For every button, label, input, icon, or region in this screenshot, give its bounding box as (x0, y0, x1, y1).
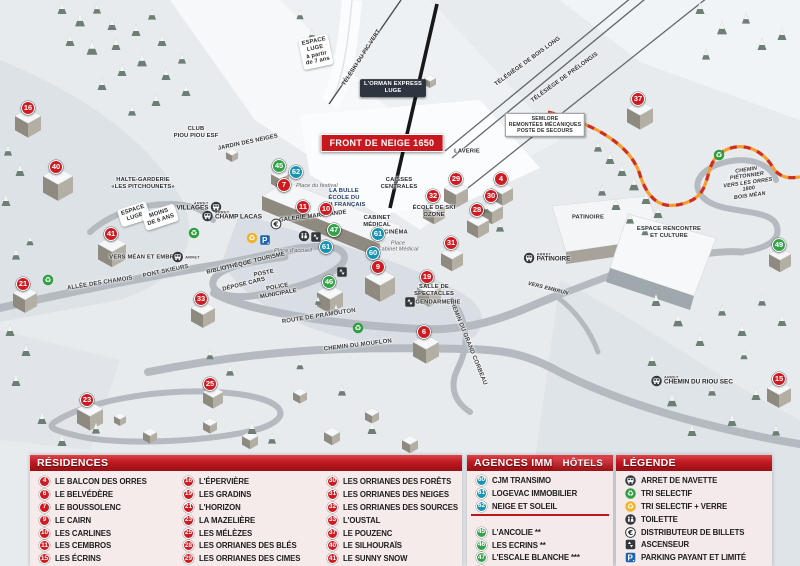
legend-item-label: LE SUNNY SNOW (343, 554, 407, 563)
map-marker-46: 46 (322, 275, 336, 289)
map-label-jardin-des-neiges: JARDIN DES NEIGES (217, 133, 278, 152)
legend-item-euro: €DISTRIBUTEUR DE BILLETS (616, 526, 772, 539)
legend-item-label: TOILETTE (641, 515, 678, 524)
legend-item-label: LE SILHOURAÏS (343, 541, 402, 550)
legend-marker-47: 47 (476, 552, 487, 563)
map-marker-10: 10 (319, 202, 333, 216)
legend-marker-45: 45 (476, 527, 487, 538)
legend-item-label: LE POUZENC (343, 529, 392, 538)
map-label-laverie: LAVERIE (454, 149, 480, 156)
map-label-all-e-des-chamois: ALLÉE DES CHAMOIS (67, 275, 134, 292)
legend-item-label: L'ESCALE BLANCHE *** (492, 553, 580, 562)
legend-item-label: LOGEVAC IMMOBILIER (492, 489, 577, 498)
legend-marker-7: 7 (39, 502, 50, 513)
legend-item-label: TRI SELECTIF + VERRE (641, 502, 727, 511)
tri-verre-icon: ♻ (247, 233, 258, 244)
residences-column-2: 16L'ÉPERVIÈRE19LES GRADINS21L'HORIZON23L… (174, 475, 318, 565)
legende-panel: LÉGENDE ARRET DE NAVETTE♻TRI SELECTIF♻TR… (616, 455, 772, 566)
svg-text:♻: ♻ (627, 502, 634, 511)
map-marker-40: 40 (49, 160, 63, 174)
legend-item-15: 15LES ÉCRINS (30, 552, 174, 565)
legend-item-33: 33L'OUSTAL (318, 514, 462, 527)
legend-item-31: 31LES ORRIANES DES NEIGES (318, 488, 462, 501)
map-marker-41: 41 (104, 227, 118, 241)
ascenseur-icon (625, 539, 636, 550)
map-marker-28: 28 (470, 203, 484, 217)
legend-item-label: LES MÉLÈZES (199, 529, 252, 538)
legend-item-label: LES CARLINES (55, 529, 111, 538)
residences-list: 4LE BALCON DES ORRES6LE BELVÉDÈRE7LE BOU… (30, 471, 462, 565)
map-label-salle-de-spectacles: SALLE DE SPECTACLES (414, 284, 454, 298)
map-label-pont-skieurs: PONT SKIEURS (142, 264, 189, 281)
map-label-vers-embrun: VERS EMBRUN (527, 281, 569, 297)
legende-list: ARRET DE NAVETTE♻TRI SELECTIF♻TRI SELECT… (616, 471, 772, 564)
agences-hotels-panel: AGENCES IMMOBILIÈRES 60CJM TRANSIMO61LOG… (467, 455, 613, 566)
ascenseur-icon (405, 297, 416, 308)
map-marker-23: 23 (80, 393, 94, 407)
map-label-chemin-du-grand-corbeau: CHEMIN DU GRAND CORBEAU (446, 298, 487, 387)
legend-item-label: NEIGE ET SOLEIL (492, 502, 557, 511)
legend-item-label: LES ORRIANES DES FORÊTS (343, 477, 451, 486)
map-label-espace-luge-partir-de-7-ans: ESPACE LUGE à partir de 7 ans (298, 34, 334, 71)
resort-map: FRONT DE NEIGE 1650 16404121332325711109… (0, 0, 800, 566)
legend-item-19: 19LES GRADINS (174, 488, 318, 501)
ascenseur-icon (337, 267, 348, 278)
legend-item-7: 7LE BOUSSOLENC (30, 501, 174, 514)
map-label-gendarmerie: GENDARMERIE (415, 300, 460, 307)
legend-item-tri-verre: ♻TRI SELECTIF + VERRE (616, 500, 772, 513)
residences-column-1: 4LE BALCON DES ORRES6LE BELVÉDÈRE7LE BOU… (30, 475, 174, 565)
legend-item-28: 28LES ORRIANES DES BLÉS (174, 539, 318, 552)
legend-marker-46: 46 (476, 540, 487, 551)
legend-marker-61: 61 (476, 488, 487, 499)
map-marker-32: 32 (426, 189, 440, 203)
map-label-t-l-si-ge-de-bois-long: TÉLÉSIÈGE DE BOIS LONG (494, 36, 562, 88)
legend-item-16: 16L'ÉPERVIÈRE (174, 475, 318, 488)
legend-marker-33: 33 (327, 515, 338, 526)
legend-marker-31: 31 (327, 489, 338, 500)
legend-item-label: LE BELVÉDÈRE (55, 490, 113, 499)
map-marker-25: 25 (203, 377, 217, 391)
legend-item-label: DISTRIBUTEUR DE BILLETS (641, 528, 744, 537)
hotels-title: HÔTELS (553, 457, 613, 471)
map-label-cin-ma: CINÉMA (384, 230, 408, 237)
legend-item-21: 21L'HORIZON (174, 501, 318, 514)
legend-item-45: 45L'ANCOLIE ** (467, 526, 613, 539)
parking-icon: P (260, 235, 271, 246)
legende-title: LÉGENDE (616, 455, 772, 471)
map-marker-6: 6 (417, 325, 431, 339)
legend-item-label: PARKING PAYANT ET LIMITÉ (641, 553, 746, 562)
legend-marker-40: 40 (327, 540, 338, 551)
legend-item-label: ARRET DE NAVETTE (641, 476, 717, 485)
toilette-icon (625, 514, 636, 525)
map-label-chemin-du-mouflon: CHEMIN DU MOUFLON (324, 338, 393, 353)
bus-stop-champ-lacas: ARRETCHAMP LACAS (202, 211, 262, 222)
svg-text:P: P (627, 554, 633, 563)
legend-item-label: LES ECRINS ** (492, 541, 546, 550)
legend-item-label: LES ORRIANES DES BLÉS (199, 541, 297, 550)
svg-text:P: P (262, 236, 268, 245)
legend-marker-60: 60 (476, 475, 487, 486)
bus-stop-arret-label: ARRET (185, 255, 200, 259)
map-marker-47: 47 (327, 223, 341, 237)
tri-icon: ♻ (353, 323, 364, 334)
svg-text:♻: ♻ (249, 234, 256, 243)
map-label-biblioth-que: BIBLIOTHÈQUE (206, 260, 252, 277)
tri-icon: ♻ (189, 228, 200, 239)
residences-column-3: 30LES ORRIANES DES FORÊTS31LES ORRIANES … (318, 475, 462, 565)
legend-item-61: 61LOGEVAC IMMOBILIER (467, 487, 613, 500)
svg-text:♻: ♻ (716, 151, 723, 160)
legend-marker-30: 30 (327, 476, 338, 487)
bus-stop-arret: ARRET (172, 252, 200, 263)
legend-marker-9: 9 (39, 515, 50, 526)
bus-icon (651, 376, 662, 387)
tri-icon: ♻ (714, 150, 725, 161)
svg-text:€: € (627, 528, 633, 537)
map-marker-19: 19 (420, 270, 434, 284)
map-marker-4: 4 (494, 172, 508, 186)
hotels-list: 45L'ANCOLIE **46LES ECRINS **47L'ESCALE … (467, 526, 613, 566)
bus-icon (524, 253, 535, 264)
map-marker-29: 29 (449, 172, 463, 186)
map-marker-15: 15 (772, 372, 786, 386)
svg-text:♻: ♻ (627, 489, 634, 498)
euro-icon: € (271, 219, 282, 230)
map-label-place-cabinet-m-dical: Place Cabinet Médical (378, 241, 419, 254)
legend-item-47: 47L'ESCALE BLANCHE *** (467, 551, 613, 564)
svg-text:♻: ♻ (45, 276, 52, 285)
legend-item-ascenseur: ASCENSEUR (616, 538, 772, 551)
legend-item-label: LES ORRIANES DES SOURCES (343, 503, 458, 512)
tri-verre-icon: ♻ (625, 501, 636, 512)
map-label-cole-de-ski-ozone: ÉCOLE DE SKI OZONE (413, 205, 456, 219)
bus-icon (625, 475, 636, 486)
legend-item-30: 30LES ORRIANES DES FORÊTS (318, 475, 462, 488)
map-label-l-orman-express-luge: L'ORMAN EXPRESS LUGE (360, 79, 426, 97)
map-label-espace-rencontre-et-culture: ESPACE RENCONTRE ET CULTURE (637, 226, 701, 240)
hotels-divider (467, 514, 613, 526)
map-label-police-municipale: POLICE MUNICIPALE (259, 281, 298, 301)
svg-text:♻: ♻ (191, 229, 198, 238)
legend-item-25: 25LES MÉLÈZES (174, 527, 318, 540)
map-marker-33: 33 (194, 292, 208, 306)
legend-item-label: LES CEMBROS (55, 541, 111, 550)
map-marker-21: 21 (16, 277, 30, 291)
legend-item-62: 62NEIGE ET SOLEIL (467, 500, 613, 513)
legend-item-23: 23LA MAZELIÈRE (174, 514, 318, 527)
legend-marker-15: 15 (39, 553, 50, 564)
tri-icon: ♻ (625, 488, 636, 499)
map-marker-49: 49 (772, 238, 786, 252)
map-marker-7: 7 (277, 178, 291, 192)
svg-text:€: € (272, 220, 278, 229)
map-marker-11: 11 (296, 200, 310, 214)
map-marker-37: 37 (631, 92, 645, 106)
legend-item-label: LA MAZELIÈRE (199, 516, 255, 525)
parking-icon: P (625, 552, 636, 563)
tri-icon: ♻ (43, 275, 54, 286)
legend-marker-29: 29 (183, 553, 194, 564)
legend-item-label: LES GRADINS (199, 490, 251, 499)
bus-icon (202, 211, 213, 222)
legend-marker-32: 32 (327, 502, 338, 513)
legend-item-parking: PPARKING PAYANT ET LIMITÉ (616, 551, 772, 564)
bus-stop-name: CHEMIN DU RIOU SEC (664, 380, 733, 387)
legend-item-60: 60CJM TRANSIMO (467, 474, 613, 487)
map-marker-62: 62 (289, 165, 303, 179)
map-marker-61-b: 61 (371, 227, 385, 241)
legend-item-11: 11LES CEMBROS (30, 539, 174, 552)
legend-marker-37: 37 (327, 528, 338, 539)
legend-item-toilette: TOILETTE (616, 513, 772, 526)
legend-item-9: 9LE CAIRN (30, 514, 174, 527)
map-label-halte-garderie-les-pitchounets: HALTE-GARDERIE «LES PITCHOUNETS» (111, 177, 174, 191)
legend-item-32: 32LES ORRIANES DES SOURCES (318, 501, 462, 514)
legend-item-label: L'ÉPERVIÈRE (199, 477, 249, 486)
legend-item-46: 46LES ECRINS ** (467, 539, 613, 552)
euro-icon: € (625, 527, 636, 538)
legend-item-6: 6LE BELVÉDÈRE (30, 488, 174, 501)
map-marker-9: 9 (371, 260, 385, 274)
map-label-semlore-remont-es-m-caniques-p: SEMLORE REMONTÉES MÉCANIQUES POSTE DE SE… (505, 113, 585, 137)
legend-marker-11: 11 (39, 540, 50, 551)
legend-item-10: 10LES CARLINES (30, 527, 174, 540)
legend-item-label: LE BOUSSOLENC (55, 503, 121, 512)
bus-stop-name: CHAMP LACAS (215, 215, 262, 222)
legend-marker-41: 41 (327, 553, 338, 564)
legend-item-label: LES ORRIANES DES CIMES (199, 554, 300, 563)
map-label-patinoire: PATINOIRE (572, 215, 604, 222)
agences-list: 60CJM TRANSIMO61LOGEVAC IMMOBILIER62NEIG… (467, 471, 613, 513)
map-marker-61: 61 (319, 240, 333, 254)
legend-item-label: L'HORIZON (199, 503, 241, 512)
map-marker-30: 30 (484, 189, 498, 203)
front-de-neige-banner: FRONT DE NEIGE 1650 (321, 134, 444, 152)
residences-panel: RÉSIDENCES 4LE BALCON DES ORRES6LE BELVÉ… (30, 455, 462, 566)
legend-item-41: 41LE SUNNY SNOW (318, 552, 462, 565)
legend-item-label: LES ORRIANES DES NEIGES (343, 490, 449, 499)
legend-item-label: LE CAIRN (55, 516, 91, 525)
map-label-chemin-pi-tonnier-vers-les-orr: CHEMIN PIÉTONNIER VERS LES ORRES 1800 BO… (720, 164, 776, 203)
legend-item-label: CJM TRANSIMO (492, 476, 551, 485)
legend-item-label: L'ANCOLIE ** (492, 528, 541, 537)
residences-title: RÉSIDENCES (30, 455, 462, 471)
legend-marker-4: 4 (39, 476, 50, 487)
legend-item-label: ASCENSEUR (641, 540, 689, 549)
bus-icon (172, 252, 183, 263)
map-label-route-de-pramouton: ROUTE DE PRAMOUTON (282, 308, 357, 327)
legend-marker-16: 16 (183, 476, 194, 487)
map-label-club-piou-piou-esf: CLUB PIOU PIOU ESF (174, 126, 219, 140)
map-label-caisses-centrales: CAISSES CENTRALES (381, 177, 418, 191)
map-marker-60: 60 (366, 246, 380, 260)
map-label-galerie-marchande: GALERIE MARCHANDE (279, 209, 347, 224)
legend-marker-19: 19 (183, 489, 194, 500)
legend-marker-6: 6 (39, 489, 50, 500)
bus-stop-chemin-du-riou-sec: ARRETCHEMIN DU RIOU SEC (651, 376, 733, 387)
toilette-icon (299, 231, 310, 242)
legend-item-bus: ARRET DE NAVETTE (616, 474, 772, 487)
legend-marker-28: 28 (183, 540, 194, 551)
legend-marker-21: 21 (183, 502, 194, 513)
legend-item-29: 29LES ORRIANES DES CIMES (174, 552, 318, 565)
legend-item-tri: ♻TRI SELECTIF (616, 487, 772, 500)
map-label-t-l-si-ge-de-pr-longis: TÉLÉSIÈGE DE PRÉLONGIS (530, 51, 600, 104)
bus-stop-name: PATINOIRE (537, 257, 571, 264)
svg-text:♻: ♻ (355, 324, 362, 333)
legend-item-label: TRI SELECTIF (641, 489, 692, 498)
ascenseur-icon (311, 232, 322, 243)
legend-item-label: LES ÉCRINS (55, 554, 101, 563)
map-marker-45: 45 (272, 159, 286, 173)
legend-item-label: L'OUSTAL (343, 516, 380, 525)
legend-marker-62: 62 (476, 501, 487, 512)
map-marker-31: 31 (444, 236, 458, 250)
legend-marker-25: 25 (183, 528, 194, 539)
legend-item-40: 40LE SILHOURAÏS (318, 539, 462, 552)
map-marker-16: 16 (21, 101, 35, 115)
legend-item-37: 37LE POUZENC (318, 527, 462, 540)
legend-item-4: 4LE BALCON DES ORRES (30, 475, 174, 488)
bus-stop-patinoire: ARRETPATINOIRE (524, 253, 571, 264)
legend-item-label: LE BALCON DES ORRES (55, 477, 147, 486)
legend-marker-10: 10 (39, 528, 50, 539)
legend-marker-23: 23 (183, 515, 194, 526)
